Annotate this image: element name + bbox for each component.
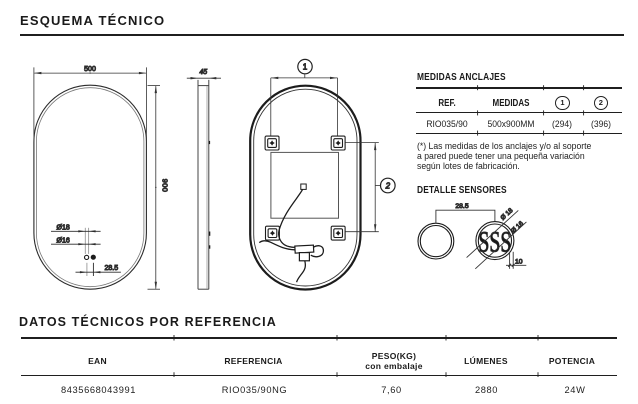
svg-text:900: 900 [160,179,169,193]
svg-text:10: 10 [515,259,523,266]
svg-text:2: 2 [385,182,391,191]
svg-text:Ø16: Ø16 [57,238,70,245]
svg-text:28.5: 28.5 [105,265,119,272]
svg-text:Ø 16: Ø 16 [510,220,525,235]
svg-text:Ø 18: Ø 18 [500,207,515,222]
svg-text:500: 500 [84,66,96,73]
svg-text:28.5: 28.5 [455,203,468,210]
svg-text:1: 1 [303,63,308,72]
svg-text:45: 45 [199,69,207,76]
svg-text:Ø18: Ø18 [57,225,70,232]
